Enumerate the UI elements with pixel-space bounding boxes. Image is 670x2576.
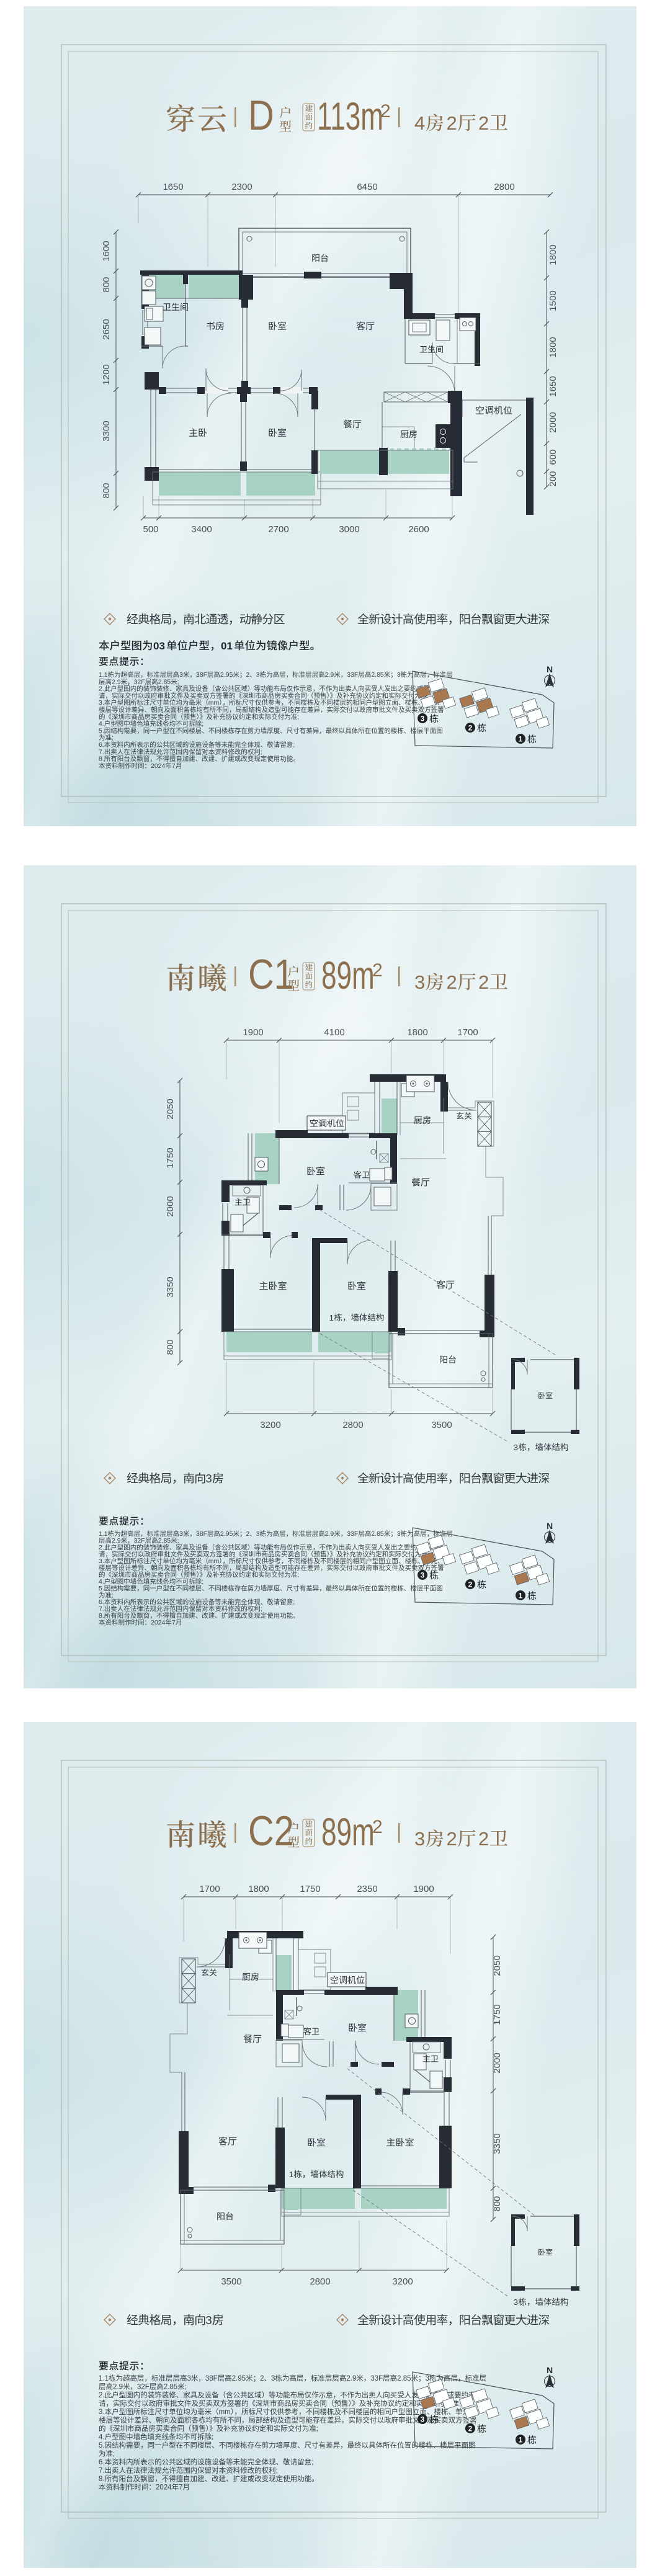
svg-text:1700: 1700 <box>457 1027 478 1038</box>
svg-text:2000: 2000 <box>492 2052 502 2073</box>
svg-text:03: 03 <box>153 640 165 652</box>
svg-text:2: 2 <box>372 960 383 981</box>
svg-text:600: 600 <box>548 449 558 465</box>
svg-text:2: 2 <box>468 2425 473 2433</box>
svg-text:本资料制作时间：2024年7月: 本资料制作时间：2024年7月 <box>99 762 182 770</box>
svg-text:1900: 1900 <box>243 1027 263 1038</box>
svg-text:113m: 113m <box>317 94 383 138</box>
svg-text:2350: 2350 <box>357 1884 377 1894</box>
svg-text:3: 3 <box>421 2415 425 2424</box>
svg-text:2000: 2000 <box>548 412 558 432</box>
svg-text:2: 2 <box>372 1817 383 1837</box>
svg-text:2: 2 <box>468 1580 473 1589</box>
svg-text:2800: 2800 <box>310 2276 330 2287</box>
svg-text:2050: 2050 <box>165 1099 176 1119</box>
svg-text:3300: 3300 <box>101 421 112 441</box>
svg-text:3200: 3200 <box>260 1420 280 1430</box>
svg-text:1750: 1750 <box>165 1148 176 1168</box>
svg-text:的《深圳市商品房买卖合同（预售）》及补充协议约定和实际交付为: 的《深圳市商品房买卖合同（预售）》及补充协议约定和实际交付为准; <box>99 713 299 721</box>
svg-text:1750: 1750 <box>300 1884 320 1894</box>
svg-text:6.本资料内所表示的公共区域的设施设备等未能完全体现、敬请留: 6.本资料内所表示的公共区域的设施设备等未能完全体现、敬请留意; <box>99 2458 313 2466</box>
svg-text:3500: 3500 <box>431 1420 452 1430</box>
svg-text:2: 2 <box>447 1828 457 1850</box>
svg-text:2: 2 <box>478 1828 489 1850</box>
svg-text:1800: 1800 <box>248 1884 269 1894</box>
svg-text:C2: C2 <box>248 1808 294 1855</box>
svg-text:3: 3 <box>205 1472 212 1485</box>
svg-text:1.1栋为超高层，标准层层高3米，38F层高2.95米；2、: 1.1栋为超高层，标准层层高3米，38F层高2.95米；2、3栋为高层，标准层层… <box>99 671 453 679</box>
svg-text:楼层等设计差异、朝向及面积各栋均有所不同，局部结构及造型可能: 楼层等设计差异、朝向及面积各栋均有所不同，局部结构及造型可能存在差异，实际交付以… <box>99 706 444 714</box>
svg-text:200: 200 <box>548 471 558 486</box>
svg-text:2: 2 <box>447 971 457 993</box>
svg-text:1650: 1650 <box>548 376 558 396</box>
svg-text:请，实际交付以政府审批文件及买卖双方签署的《深圳市商品房买卖: 请，实际交付以政府审批文件及买卖双方签署的《深圳市商品房买卖合同（预售）》及补充… <box>99 2399 461 2408</box>
svg-text:4.户型图中墙色填充线条均不可拆除;: 4.户型图中墙色填充线条均不可拆除; <box>99 2433 213 2441</box>
svg-text:2300: 2300 <box>231 182 252 192</box>
svg-text:1800: 1800 <box>548 337 558 357</box>
svg-text:1750: 1750 <box>492 2004 502 2025</box>
svg-text:3: 3 <box>421 715 425 723</box>
svg-text:4.户型图中墙色填充线条均不可拆除;: 4.户型图中墙色填充线条均不可拆除; <box>99 720 203 728</box>
svg-text:2: 2 <box>447 112 457 134</box>
svg-text:4100: 4100 <box>324 1027 344 1038</box>
svg-text:800: 800 <box>492 2196 502 2211</box>
svg-text:1500: 1500 <box>548 290 558 311</box>
svg-text:为准;: 为准; <box>99 2450 115 2458</box>
svg-text:N: N <box>547 664 553 674</box>
svg-text:2: 2 <box>478 971 489 993</box>
svg-text:为准;: 为准; <box>99 734 114 742</box>
svg-text:D: D <box>248 92 274 139</box>
svg-text:3: 3 <box>421 1571 425 1580</box>
svg-text:1: 1 <box>289 2170 293 2179</box>
svg-text:2800: 2800 <box>342 1420 363 1430</box>
svg-text:8.所有阳台及飘窗，不得擅自加建、改建、扩建或改变现定使用功: 8.所有阳台及飘窗，不得擅自加建、改建、扩建或改变现定使用功能。 <box>99 755 300 763</box>
svg-text:3400: 3400 <box>191 524 212 535</box>
svg-text:2: 2 <box>380 101 391 122</box>
svg-text:1: 1 <box>329 1313 334 1322</box>
svg-text:8.所有阳台及飘窗，不得擅自加建、改建、扩建或改变现定使用功: 8.所有阳台及飘窗，不得擅自加建、改建、扩建或改变现定使用功能。 <box>99 2474 319 2483</box>
svg-text:3000: 3000 <box>339 524 359 535</box>
svg-text:N: N <box>547 1521 553 1531</box>
svg-text:3: 3 <box>514 1443 518 1452</box>
svg-text:1800: 1800 <box>407 1027 427 1038</box>
svg-text:6.本资料内所表示的公共区域的设施设备等未能完全体现、敬请留: 6.本资料内所表示的公共区域的设施设备等未能完全体现、敬请留意; <box>99 741 295 749</box>
svg-text:4: 4 <box>414 112 425 134</box>
svg-text:的《深圳市商品房买卖合同（预售）》及补充协议约定和实际交付为: 的《深圳市商品房买卖合同（预售）》及补充协议约定和实际交付为准; <box>99 2424 318 2433</box>
svg-text:1900: 1900 <box>413 1884 434 1894</box>
svg-text:1800: 1800 <box>548 244 558 265</box>
svg-text:800: 800 <box>101 483 112 498</box>
svg-text:层高2.9米，32F层高2.85米;: 层高2.9米，32F层高2.85米; <box>99 2382 187 2391</box>
svg-text:1: 1 <box>519 2436 523 2445</box>
svg-text:1: 1 <box>519 1592 523 1600</box>
svg-text:本资料制作时间：2024年7月: 本资料制作时间：2024年7月 <box>99 1618 182 1626</box>
svg-text:2600: 2600 <box>408 524 429 535</box>
svg-text:2700: 2700 <box>268 524 288 535</box>
svg-text:5.因结构需要，同一户型在不同楼层、不同楼栋存在剪力墙厚度、: 5.因结构需要，同一户型在不同楼层、不同楼栋存在剪力墙厚度、尺寸有差异，最终以具… <box>99 726 443 734</box>
svg-text:7.出卖人在法律法规允许范围内保留对本资料修改的权利;: 7.出卖人在法律法规允许范围内保留对本资料修改的权利; <box>99 2466 278 2475</box>
svg-text:2000: 2000 <box>165 1196 176 1216</box>
svg-text:800: 800 <box>165 1339 176 1355</box>
svg-text:3.本户型图所标注尺寸单位均为毫米（mm），所标尺寸仅供参考: 3.本户型图所标注尺寸单位均为毫米（mm），所标尺寸仅供参考，不同楼栋及不同楼层… <box>99 698 444 706</box>
svg-text:3: 3 <box>414 971 425 993</box>
svg-text:5.因结构需要，同一户型在不同楼层、不同楼栋存在剪力墙厚度、: 5.因结构需要，同一户型在不同楼层、不同楼栋存在剪力墙厚度、尺寸有差异，最终以具… <box>99 1584 443 1592</box>
svg-text:N: N <box>547 2365 553 2375</box>
svg-text:1: 1 <box>519 735 523 744</box>
svg-text:2650: 2650 <box>101 319 112 339</box>
svg-text:3200: 3200 <box>392 2276 413 2287</box>
svg-text:89m: 89m <box>321 953 375 997</box>
svg-text:C1: C1 <box>248 952 294 998</box>
svg-text:500: 500 <box>143 524 158 535</box>
svg-text:2: 2 <box>468 724 473 733</box>
svg-text:01: 01 <box>221 640 233 652</box>
svg-text:2.此户型图内的装饰装修、家具及设备（含公共区域）等功能布局: 2.此户型图内的装饰装修、家具及设备（含公共区域）等功能布局仅作示意，不作为出卖… <box>99 685 443 693</box>
svg-text:800: 800 <box>101 277 112 292</box>
svg-text:3350: 3350 <box>492 2133 502 2154</box>
svg-text:2800: 2800 <box>494 182 514 192</box>
svg-text:3: 3 <box>205 2314 212 2327</box>
svg-text:3: 3 <box>414 1828 425 1850</box>
svg-text:层高2.9米，32F层高2.85米;: 层高2.9米，32F层高2.85米; <box>99 677 179 685</box>
svg-text:1650: 1650 <box>163 182 183 192</box>
svg-text:1600: 1600 <box>101 241 112 261</box>
svg-text:5.因结构需要，同一户型在不同楼层、不同楼栋存在剪力墙厚度、: 5.因结构需要，同一户型在不同楼层、不同楼栋存在剪力墙厚度、尺寸有差异，最终以具… <box>99 2441 476 2449</box>
svg-text:3350: 3350 <box>165 1277 176 1297</box>
svg-text:本资料制作时间：2024年7月: 本资料制作时间：2024年7月 <box>99 2483 190 2492</box>
svg-text:3: 3 <box>514 2297 518 2307</box>
svg-text:89m: 89m <box>321 1810 375 1854</box>
svg-text:1700: 1700 <box>199 1884 220 1894</box>
svg-text:3500: 3500 <box>221 2276 241 2287</box>
svg-text:7.出卖人在法律法规允许范围内保留对本资料修改的权利;: 7.出卖人在法律法规允许范围内保留对本资料修改的权利; <box>99 747 262 755</box>
svg-text:请，实际交付以政府审批文件及买卖双方签署的《深圳市商品房买卖: 请，实际交付以政府审批文件及买卖双方签署的《深圳市商品房买卖合同（预售）》及补充… <box>99 692 429 700</box>
svg-text:1200: 1200 <box>101 364 112 385</box>
svg-text:6450: 6450 <box>357 182 377 192</box>
svg-text:2050: 2050 <box>492 1955 502 1976</box>
svg-text:2: 2 <box>478 112 489 134</box>
